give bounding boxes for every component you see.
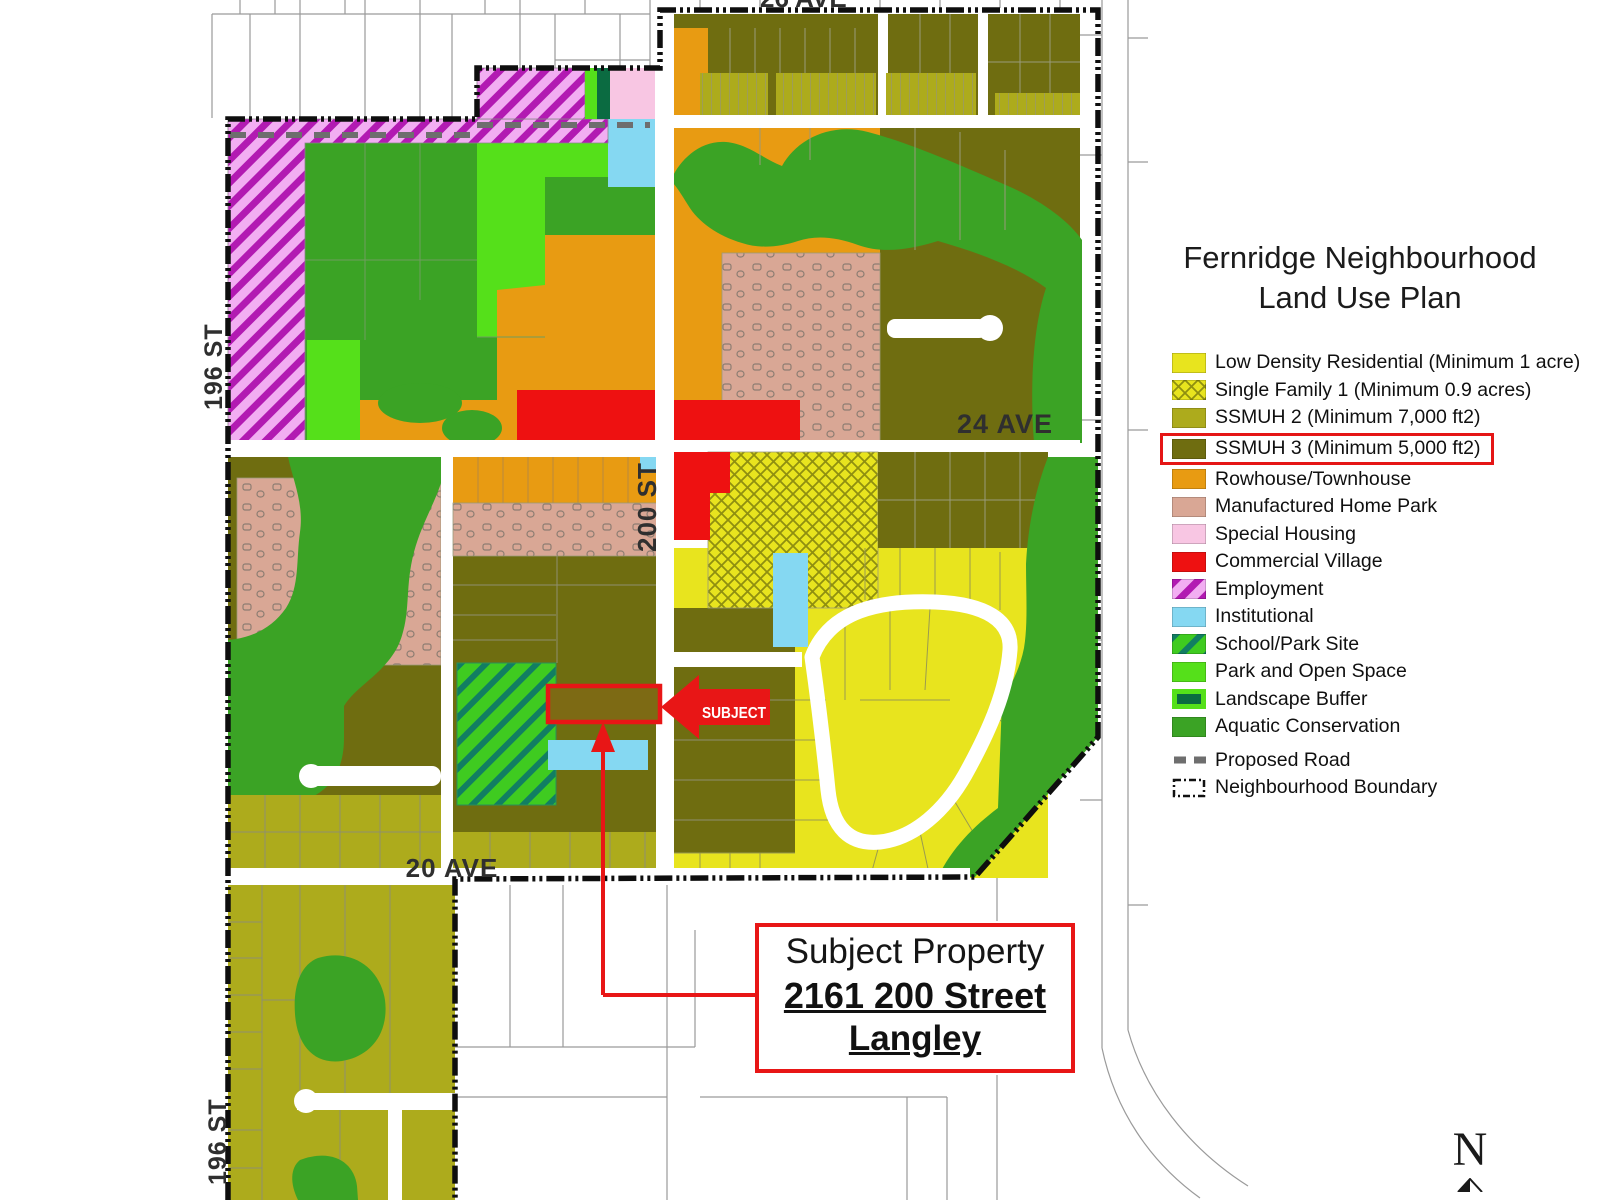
- zone-ssmuh2-lots: [995, 93, 1080, 115]
- north-label: N: [1453, 1123, 1488, 1176]
- employment-swatch: [1172, 579, 1206, 599]
- legend-label: Park and Open Space: [1215, 660, 1407, 683]
- zone-employment-upper: [477, 68, 585, 119]
- legend-label: Special Housing: [1215, 523, 1356, 546]
- legend-label: Low Density Residential (Minimum 1 acre): [1215, 351, 1580, 374]
- aquatic-swatch: [1172, 717, 1206, 737]
- callout-city: Langley: [759, 1019, 1071, 1059]
- legend-item-school-park-site: School/Park Site: [1150, 631, 1590, 659]
- special-housing-swatch: [1172, 524, 1206, 544]
- ldr-swatch: [1172, 353, 1206, 373]
- zone-block-midwest: [228, 457, 658, 868]
- zone-ssmuh2-lots: [700, 73, 768, 115]
- subject-property-callout: Subject Property 2161 200 Street Langley: [755, 923, 1075, 1073]
- zone-block-northeast: [668, 14, 1082, 443]
- legend-label: Aquatic Conservation: [1215, 715, 1400, 738]
- ssmuh3-highlight-box: SSMUH 3 (Minimum 5,000 ft2): [1160, 433, 1494, 465]
- cul-de-sac-bulb: [299, 764, 323, 788]
- boundary-swatch: [1172, 778, 1206, 798]
- plan-title-line2: Land Use Plan: [1150, 278, 1570, 318]
- legend-item-ssmuh-3: SSMUH 3 (Minimum 5,000 ft2): [1163, 436, 1491, 462]
- cul-de-sac: [977, 315, 1003, 341]
- zone-special-housing: [610, 68, 655, 119]
- legend-label: Employment: [1215, 578, 1323, 601]
- school-park-swatch: [1172, 634, 1206, 654]
- zone-mhp-mw-strip: [453, 503, 658, 556]
- rowhouse-swatch: [1172, 469, 1206, 489]
- zone-landscape-buffer: [597, 68, 610, 119]
- street-label-200-st: 200 ST: [632, 462, 662, 552]
- legend-label: SSMUH 2 (Minimum 7,000 ft2): [1215, 406, 1481, 429]
- legend-item-ssmuh-2: SSMUH 2 (Minimum 7,000 ft2): [1150, 404, 1590, 432]
- zone-school-park-site: [457, 663, 556, 805]
- park-swatch: [1172, 662, 1206, 682]
- street-label-20-ave: 20 AVE: [406, 853, 499, 883]
- north-arrow-icon: [1452, 1178, 1488, 1192]
- legend-label: Manufactured Home Park: [1215, 495, 1437, 518]
- legend-label: Landscape Buffer: [1215, 688, 1368, 711]
- zone-park-sliver: [585, 68, 597, 119]
- ssmuh3-swatch: [1172, 439, 1206, 459]
- street-internal: [441, 457, 453, 868]
- ssmuh2-swatch: [1172, 408, 1206, 428]
- land-use-plan-page: { "title": {"line1": "Fernridge Neighbou…: [0, 0, 1600, 1200]
- street-200-st: [656, 10, 674, 885]
- cul-de-sac-bulb: [294, 1089, 318, 1113]
- legend-item-employment: Employment: [1150, 576, 1590, 604]
- callout-address: 2161 200 Street: [759, 975, 1071, 1017]
- legend-item-neighbourhood-boundary: Neighbourhood Boundary: [1150, 774, 1590, 802]
- subject-parcel: [548, 686, 660, 722]
- legend-item-manufactured-home-park: Manufactured Home Park: [1150, 493, 1590, 521]
- road-south-vertical: [388, 1110, 402, 1200]
- street-label-24-ave: 24 AVE: [957, 409, 1053, 439]
- street-label-196-st-lower: 196 ST: [204, 1098, 232, 1185]
- zone-rowhouse-mw: [453, 457, 658, 503]
- legend-item-proposed-road: Proposed Road: [1150, 747, 1590, 775]
- legend-item-special-housing: Special Housing: [1150, 521, 1590, 549]
- legend: Low Density Residential (Minimum 1 acre)…: [1150, 349, 1590, 802]
- street-label-26-ave-clipped: 26 AVE: [760, 0, 847, 13]
- zone-block-south: [228, 885, 455, 1200]
- street-label-196-st-upper: 196 ST: [200, 323, 228, 410]
- legend-item-single-family-1: Single Family 1 (Minimum 0.9 acres): [1150, 377, 1590, 405]
- road-cul-de-sac: [303, 766, 441, 786]
- callout-title: Subject Property: [759, 932, 1071, 972]
- legend-item-landscape-buffer: Landscape Buffer: [1150, 686, 1590, 714]
- street-connector: [660, 652, 802, 667]
- single-family-swatch: [1172, 380, 1206, 400]
- landscape-buffer-swatch: [1172, 689, 1206, 709]
- commercial-swatch: [1172, 552, 1206, 572]
- legend-item-rowhouse-townhouse: Rowhouse/Townhouse: [1150, 466, 1590, 494]
- legend-item-institutional: Institutional: [1150, 603, 1590, 631]
- plan-title: Fernridge Neighbourhood Land Use Plan: [1150, 238, 1570, 318]
- zone-commercial-ne: [668, 400, 800, 443]
- zone-commercial-nw: [517, 390, 655, 443]
- street: [672, 115, 1080, 128]
- mhp-swatch: [1172, 497, 1206, 517]
- legend-item-low-density-residential: Low Density Residential (Minimum 1 acre): [1150, 349, 1590, 377]
- road-cul-de-sac-south: [297, 1093, 455, 1110]
- zone-park-nw-c: [307, 340, 360, 443]
- north-compass: N: [1438, 1124, 1502, 1192]
- zone-institutional-nw: [608, 119, 655, 187]
- subject-arrow-label: SUBJECT: [702, 705, 766, 722]
- legend-label: Single Family 1 (Minimum 0.9 acres): [1215, 379, 1531, 402]
- street-gap: [978, 14, 988, 115]
- zone-institutional-me: [773, 553, 808, 647]
- legend-label: Commercial Village: [1215, 550, 1383, 573]
- legend-label: Proposed Road: [1215, 749, 1351, 772]
- zone-ssmuh2-lots: [776, 73, 876, 115]
- legend-label: Institutional: [1215, 605, 1314, 628]
- legend-item-aquatic-conservation: Aquatic Conservation: [1150, 713, 1590, 741]
- legend-label: SSMUH 3 (Minimum 5,000 ft2): [1215, 437, 1481, 460]
- institutional-swatch: [1172, 607, 1206, 627]
- legend-label: School/Park Site: [1215, 633, 1359, 656]
- road-stub: [887, 319, 987, 338]
- plan-title-line1: Fernridge Neighbourhood: [1150, 238, 1570, 278]
- legend-label: Rowhouse/Townhouse: [1215, 468, 1411, 491]
- zone-ssmuh2-lots: [886, 73, 976, 115]
- proposed-road-swatch: [1172, 750, 1206, 770]
- legend-item-park-open-space: Park and Open Space: [1150, 658, 1590, 686]
- legend-label: Neighbourhood Boundary: [1215, 776, 1437, 799]
- legend-item-commercial-village: Commercial Village: [1150, 548, 1590, 576]
